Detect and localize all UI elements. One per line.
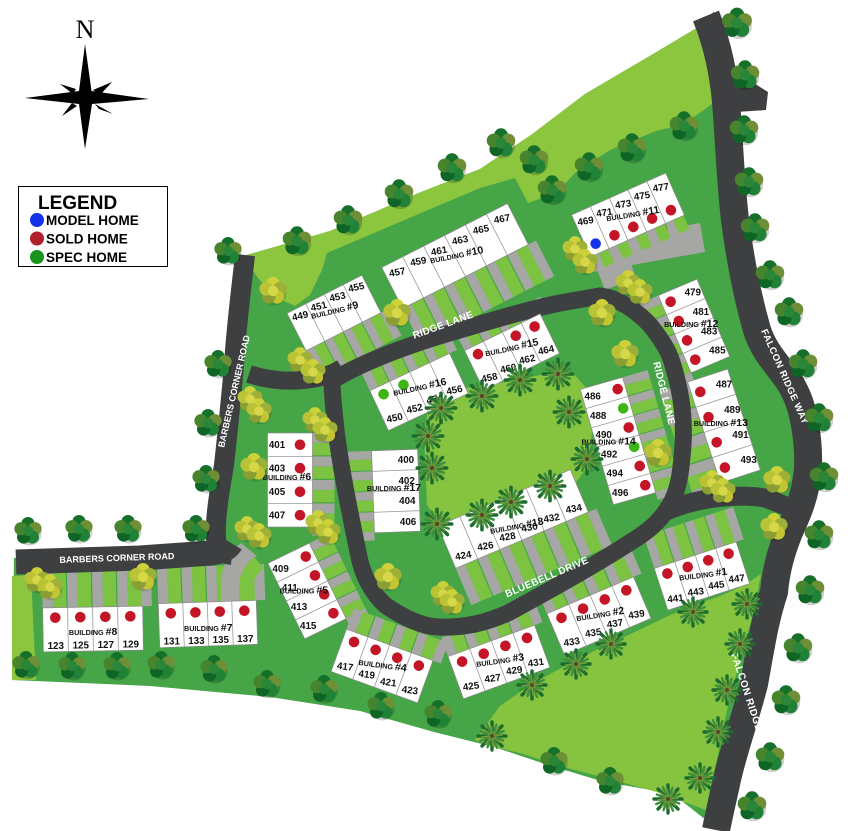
- svg-text:129: 129: [123, 640, 140, 651]
- svg-text:425: 425: [462, 680, 480, 693]
- svg-text:487: 487: [716, 380, 733, 391]
- svg-text:423: 423: [401, 684, 419, 697]
- svg-text:407: 407: [269, 511, 286, 522]
- svg-text:415: 415: [300, 621, 317, 632]
- svg-text:401: 401: [269, 440, 286, 451]
- svg-text:BUILDING #14: BUILDING #14: [582, 436, 636, 448]
- svg-text:BUILDING #7: BUILDING #7: [184, 622, 233, 634]
- svg-text:443: 443: [687, 586, 705, 599]
- svg-text:445: 445: [708, 579, 726, 592]
- svg-text:133: 133: [188, 636, 205, 647]
- svg-text:406: 406: [400, 517, 417, 528]
- svg-text:488: 488: [590, 411, 607, 422]
- svg-text:494: 494: [607, 469, 624, 480]
- svg-text:137: 137: [237, 634, 254, 645]
- svg-text:BUILDING #13: BUILDING #13: [694, 417, 748, 429]
- svg-text:493: 493: [740, 455, 757, 466]
- svg-text:417: 417: [336, 661, 354, 674]
- svg-text:479: 479: [685, 288, 702, 299]
- svg-text:BUILDING #17: BUILDING #17: [367, 482, 421, 494]
- svg-text:N: N: [76, 15, 95, 44]
- svg-text:486: 486: [585, 392, 602, 403]
- svg-text:LEGEND: LEGEND: [38, 193, 117, 214]
- svg-text:441: 441: [667, 593, 685, 606]
- svg-text:492: 492: [601, 449, 618, 460]
- svg-text:419: 419: [358, 669, 376, 682]
- svg-text:BUILDING #5: BUILDING #5: [280, 585, 329, 597]
- svg-text:421: 421: [379, 676, 397, 689]
- svg-text:496: 496: [612, 488, 629, 499]
- svg-text:404: 404: [399, 496, 416, 507]
- svg-text:481: 481: [693, 307, 710, 318]
- svg-text:BUILDING #8: BUILDING #8: [69, 626, 118, 638]
- svg-text:491: 491: [732, 430, 749, 441]
- svg-text:125: 125: [73, 641, 90, 652]
- svg-text:431: 431: [527, 657, 545, 670]
- svg-text:427: 427: [484, 672, 502, 685]
- svg-text:BUILDING #12: BUILDING #12: [664, 318, 718, 330]
- svg-text:123: 123: [48, 641, 65, 652]
- svg-text:409: 409: [272, 564, 289, 575]
- svg-text:485: 485: [709, 346, 726, 357]
- svg-text:447: 447: [728, 573, 746, 586]
- svg-text:MODEL HOME: MODEL HOME: [46, 213, 139, 228]
- svg-text:SPEC HOME: SPEC HOME: [46, 250, 127, 265]
- svg-text:405: 405: [269, 487, 286, 498]
- svg-text:BUILDING #6: BUILDING #6: [263, 471, 312, 483]
- svg-text:489: 489: [724, 405, 741, 416]
- svg-text:135: 135: [213, 635, 230, 646]
- svg-text:400: 400: [398, 455, 415, 466]
- svg-text:413: 413: [291, 602, 308, 613]
- svg-text:SOLD HOME: SOLD HOME: [46, 232, 128, 247]
- svg-text:131: 131: [164, 637, 181, 648]
- svg-text:127: 127: [98, 640, 115, 651]
